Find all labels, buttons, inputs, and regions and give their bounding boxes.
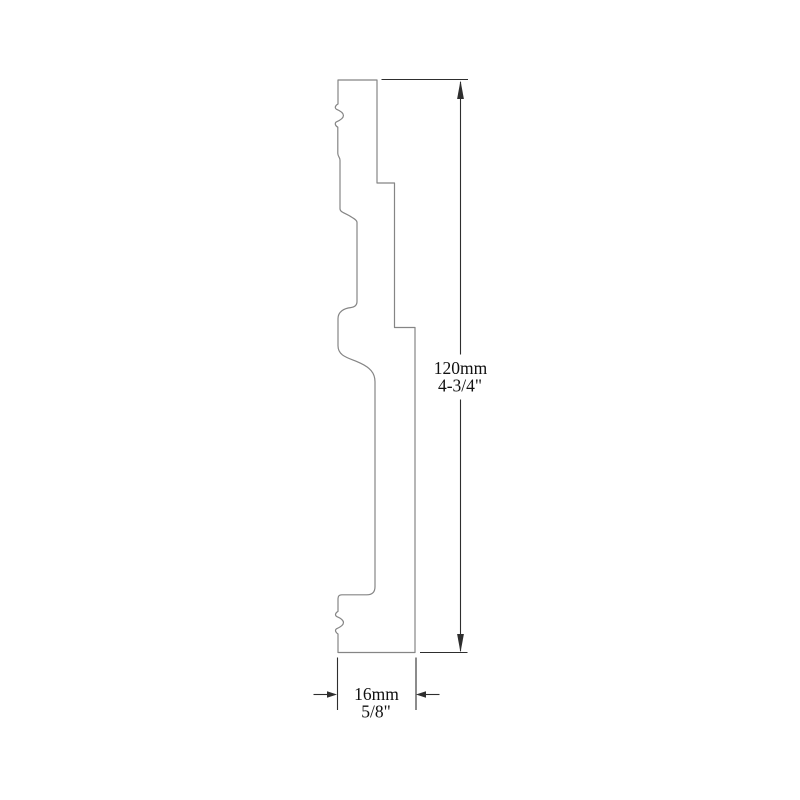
arrow-left-icon <box>416 691 426 697</box>
height-label-imperial: 4-3/4" <box>438 376 482 396</box>
moulding-profile <box>335 80 415 653</box>
width-label-imperial: 5/8" <box>361 702 391 722</box>
moulding-profile-drawing: 120mm 4-3/4" 16mm 5/8" <box>0 0 800 800</box>
moulding-profile-outline <box>335 80 415 653</box>
drawing-canvas: 120mm 4-3/4" 16mm 5/8" <box>0 0 800 800</box>
dimension-labels: 120mm 4-3/4" 16mm 5/8" <box>354 358 487 722</box>
arrow-up-icon <box>457 81 464 100</box>
arrow-right-icon <box>327 691 337 697</box>
arrow-down-icon <box>457 634 464 653</box>
